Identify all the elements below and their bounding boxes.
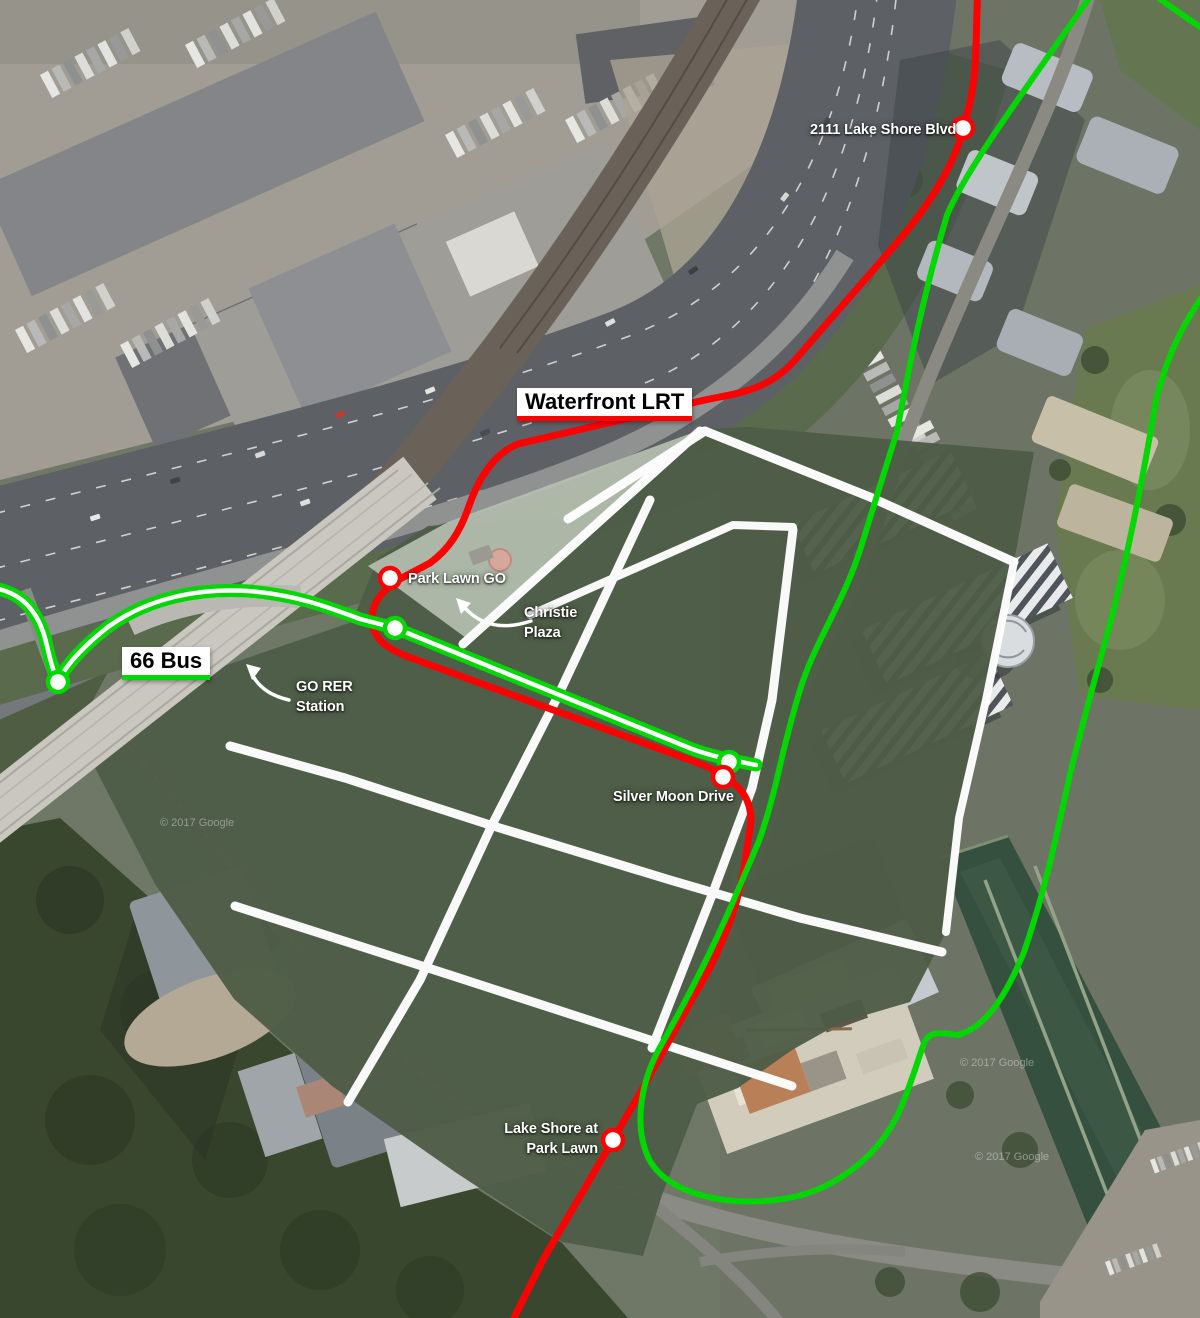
bus-stop-marker-west (48, 672, 68, 692)
water-tower (489, 549, 511, 571)
label-line: Lake Shore at (496, 1119, 598, 1139)
label-line: Station (296, 697, 353, 717)
label-2111-lake-shore-blvd: 2111 Lake Shore Blvd (810, 120, 946, 140)
label-lake-shore-at-park-lawn: Lake Shore at Park Lawn (496, 1119, 598, 1159)
google-watermark: © 2017 Google (160, 817, 234, 829)
label-line: GO RER (296, 677, 353, 697)
label-silver-moon-drive: Silver Moon Drive (613, 787, 734, 807)
station-marker-2111-lake-shore (953, 118, 973, 138)
label-park-lawn-go: Park Lawn GO (408, 569, 506, 589)
label-line: Christie (524, 603, 577, 623)
google-watermark: © 2017 Google (960, 1057, 1034, 1069)
label-waterfront-lrt: Waterfront LRT (517, 388, 692, 421)
label-christie-plaza: Christie Plaza (524, 603, 577, 643)
transit-map: © 2017 Google © 2017 Google © 2017 Googl… (0, 0, 1200, 1318)
label-66-bus: 66 Bus (122, 647, 210, 680)
label-go-rer-station: GO RER Station (296, 677, 353, 717)
bus-stop-marker-park-lawn (385, 618, 405, 638)
label-line: Park Lawn (496, 1139, 598, 1159)
station-marker-silver-moon (713, 767, 733, 787)
google-watermark: © 2017 Google (975, 1151, 1049, 1163)
station-marker-park-lawn-go (380, 568, 400, 588)
label-line: Plaza (524, 623, 577, 643)
station-marker-lake-shore-park-lawn (603, 1130, 623, 1150)
